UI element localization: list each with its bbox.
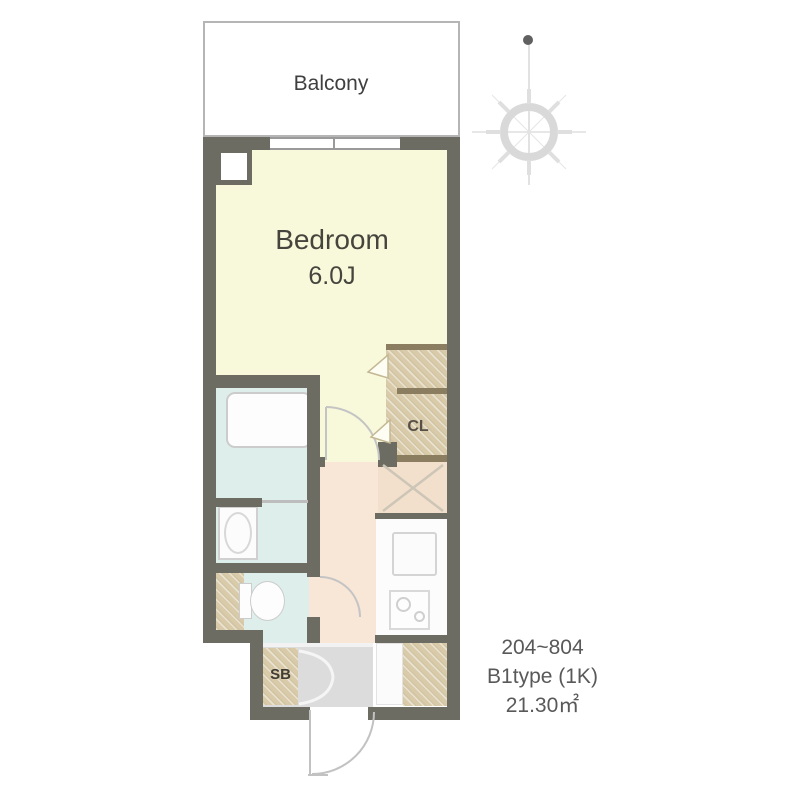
bedroom-size: 6.0J bbox=[232, 262, 432, 291]
stove bbox=[389, 590, 430, 630]
window bbox=[270, 137, 400, 150]
laundry-space bbox=[376, 643, 403, 705]
wall bbox=[368, 707, 460, 720]
entrance-step-line bbox=[263, 643, 373, 647]
wall bbox=[250, 707, 310, 720]
bathtub bbox=[226, 392, 312, 448]
shoebox-label: SB bbox=[263, 666, 298, 683]
closet-shelf-line bbox=[397, 388, 447, 394]
floorplan-canvas: Balcony CL SB Bedroom bbox=[0, 0, 800, 800]
closet-top-trim bbox=[386, 344, 447, 350]
annotation-area: 21.30㎡ bbox=[455, 691, 630, 720]
bedroom-label: Bedroom bbox=[232, 224, 432, 256]
wall bbox=[378, 442, 397, 467]
kitchen-sink bbox=[392, 532, 437, 576]
closet-label: CL bbox=[403, 418, 433, 436]
wall bbox=[375, 635, 460, 643]
wall bbox=[210, 498, 262, 507]
wall bbox=[210, 563, 320, 573]
window-mullion bbox=[333, 137, 335, 150]
wall bbox=[307, 617, 320, 643]
entrance-door-arc bbox=[308, 710, 374, 776]
wall bbox=[307, 388, 320, 577]
bath-door-line bbox=[262, 500, 308, 503]
pillar bbox=[216, 148, 252, 185]
stove-burner-icon bbox=[396, 597, 411, 612]
annotation-type: B1type (1K) bbox=[455, 662, 630, 691]
annotation-units: 204~804 bbox=[455, 633, 630, 662]
wall bbox=[307, 457, 325, 467]
fridge-space bbox=[378, 462, 447, 515]
toilet-bowl bbox=[250, 581, 285, 621]
wall bbox=[203, 375, 320, 388]
balcony-label: Balcony bbox=[231, 72, 431, 96]
storage-box bbox=[403, 643, 447, 706]
stove-burner-icon bbox=[414, 611, 425, 622]
compass-icon bbox=[472, 35, 586, 185]
wall bbox=[375, 513, 460, 519]
unit-annotation: 204~804 B1type (1K) 21.30㎡ bbox=[455, 633, 630, 720]
washbasin-bowl-icon bbox=[224, 512, 252, 554]
